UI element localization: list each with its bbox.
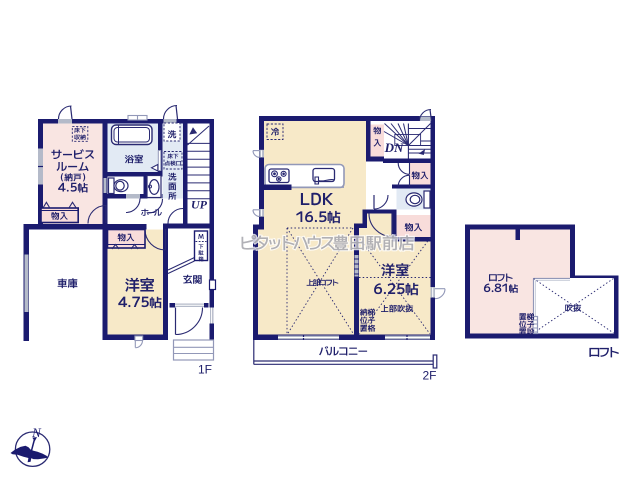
svg-text:2F: 2F — [422, 369, 436, 383]
svg-text:1F: 1F — [198, 363, 212, 377]
svg-text:UP: UP — [191, 198, 208, 212]
svg-text:DN: DN — [384, 140, 404, 155]
